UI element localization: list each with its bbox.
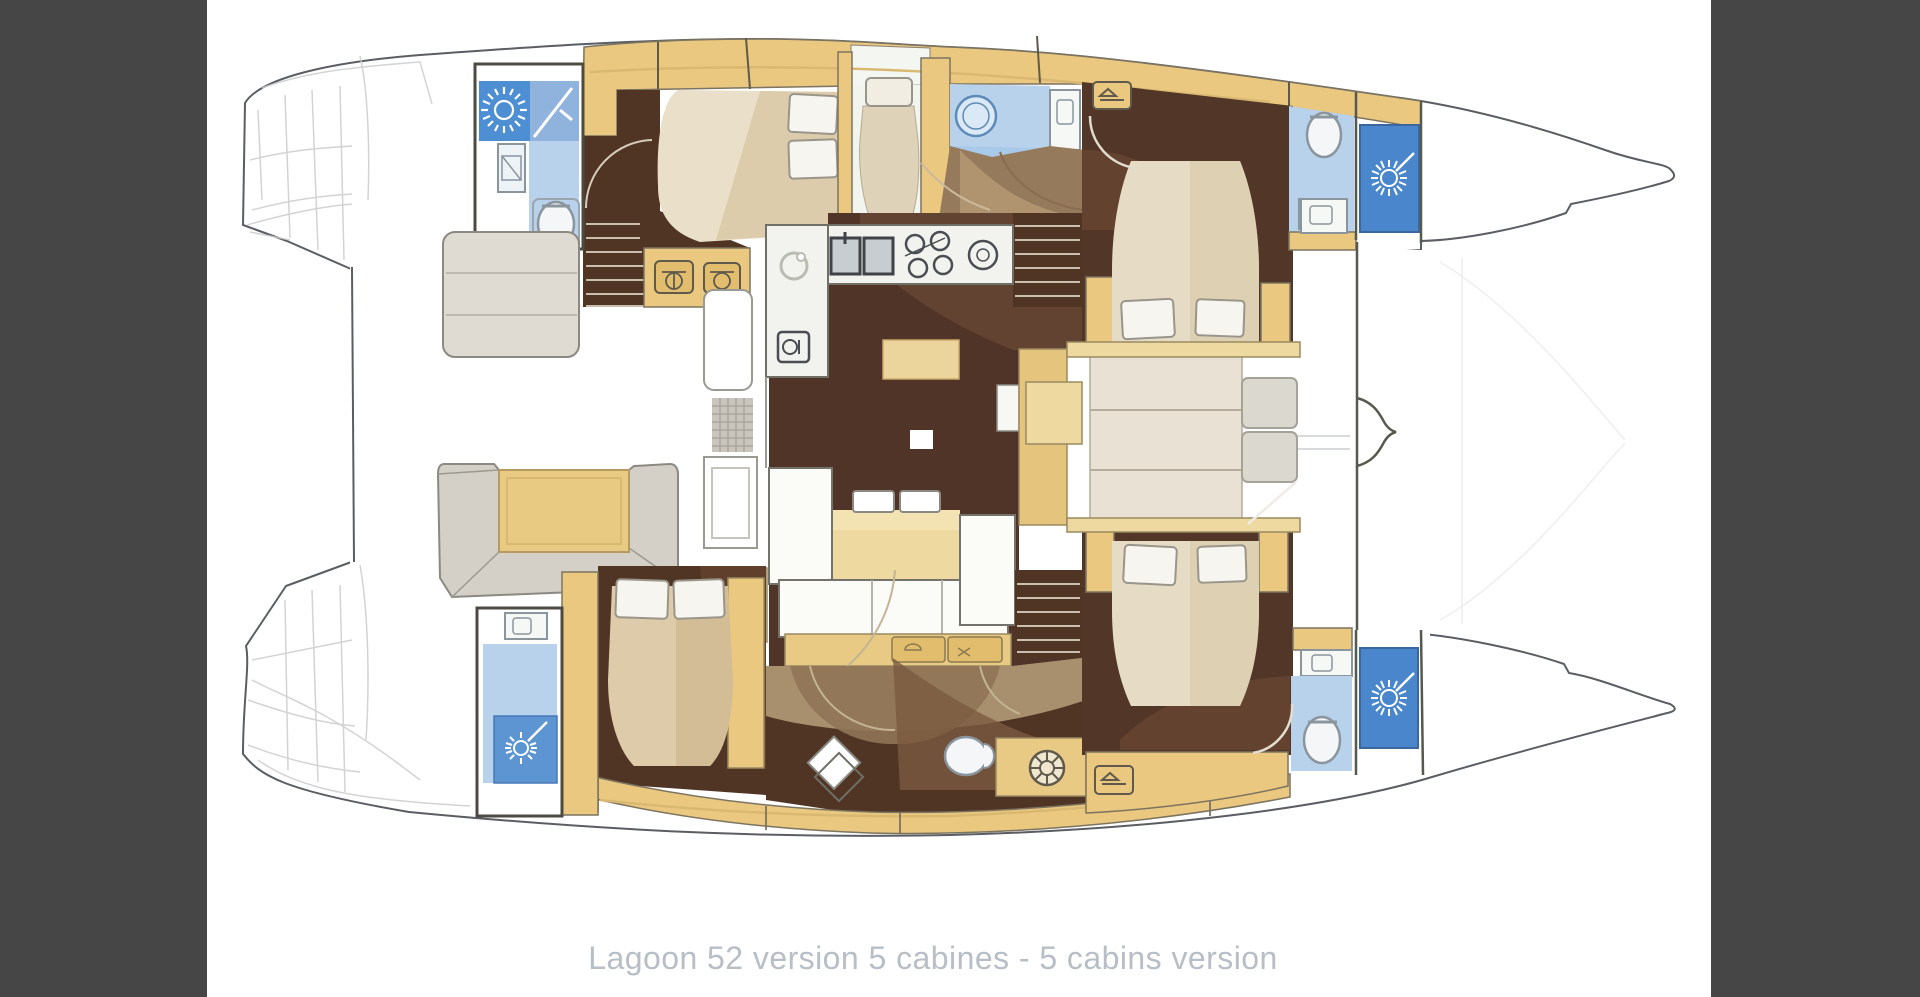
svg-text:Lagoon 52 version 5 cabines -: Lagoon 52 version 5 cabines - 5 cabins v…: [588, 940, 1278, 976]
